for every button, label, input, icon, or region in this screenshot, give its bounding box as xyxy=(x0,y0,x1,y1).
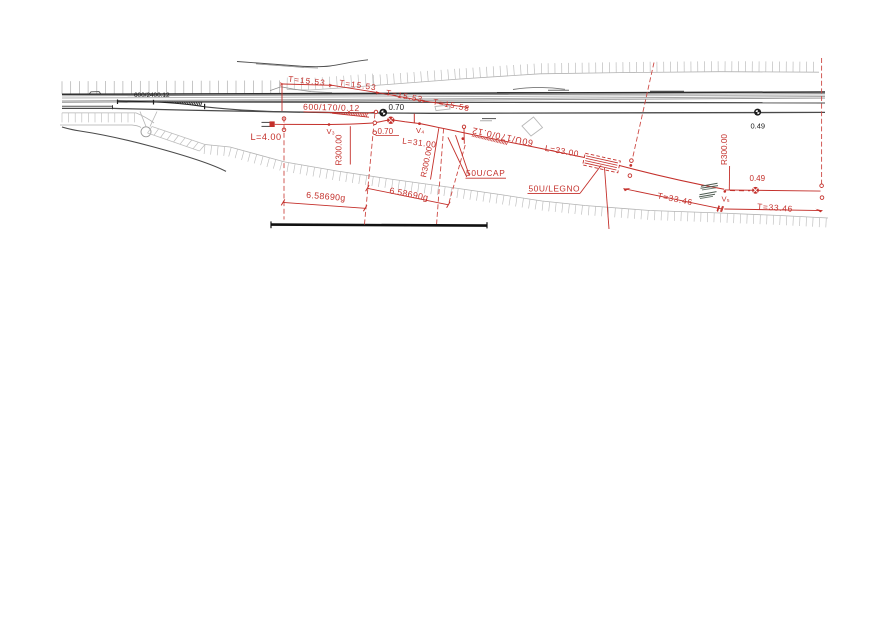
svg-text:600/170/0.12: 600/170/0.12 xyxy=(303,102,360,113)
svg-text:0.70: 0.70 xyxy=(389,103,405,112)
svg-text:L=4.00: L=4.00 xyxy=(251,132,282,142)
svg-text:V₃: V₃ xyxy=(327,127,335,136)
svg-text:V₄: V₄ xyxy=(416,126,424,135)
svg-text:R300.00: R300.00 xyxy=(335,134,344,165)
svg-text:0.49: 0.49 xyxy=(750,174,766,183)
svg-text:50U/LEGNO: 50U/LEGNO xyxy=(529,184,581,194)
svg-text:R300.00: R300.00 xyxy=(720,134,729,165)
svg-text:50U/CAP: 50U/CAP xyxy=(466,168,506,178)
svg-text:0.70: 0.70 xyxy=(378,127,394,136)
svg-text:600/2400.12: 600/2400.12 xyxy=(134,92,170,99)
svg-text:V₅: V₅ xyxy=(722,195,730,204)
svg-text:0.49: 0.49 xyxy=(751,121,766,130)
